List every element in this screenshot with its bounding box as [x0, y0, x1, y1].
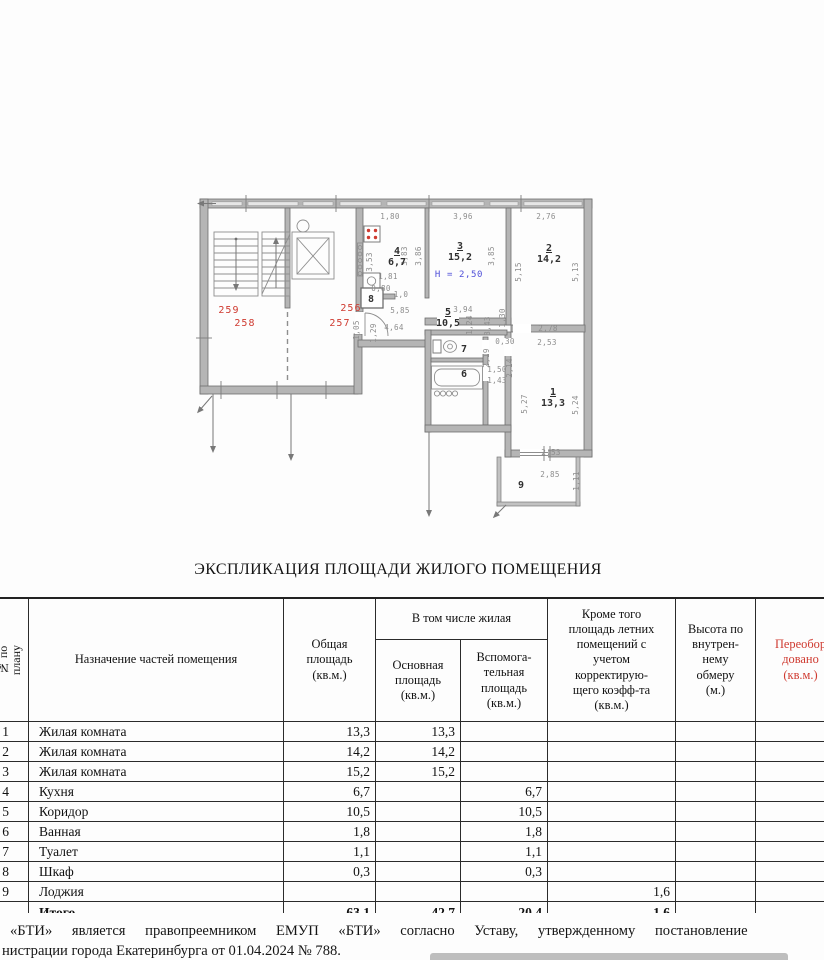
bathtub-icon: [432, 366, 483, 396]
cell-name: Ванная: [29, 822, 284, 842]
cell-aux: 6,7: [461, 782, 548, 802]
dimension-label: 1,30: [498, 308, 507, 328]
cell-no: 3: [0, 762, 29, 782]
cell-total: 14,2: [284, 742, 376, 762]
room-label: 9: [518, 480, 524, 491]
cell-main: 14,2: [376, 742, 461, 762]
dimension-label: 1,43: [487, 376, 507, 385]
dimension-label: 5,27: [520, 394, 529, 414]
room-label: 8: [368, 294, 374, 305]
cell-aux: 1,1: [461, 842, 548, 862]
cell-name: Лоджия: [29, 882, 284, 902]
cell-main: [376, 802, 461, 822]
dimension-label: 1,0: [394, 290, 409, 299]
cell-height: [676, 762, 756, 782]
table-row: 4Кухня6,76,7: [0, 782, 824, 802]
cell-aux: [461, 762, 548, 782]
cell-main: [376, 822, 461, 842]
dimension-label: 5,13: [571, 262, 580, 282]
header-main-area: Основная площадь (кв.м.): [376, 640, 461, 722]
header-reequipped: Переобор довано (кв.м.): [756, 598, 824, 722]
header-plan-no: № по плану: [0, 598, 29, 722]
dimension-label: 5,85: [390, 306, 410, 315]
cell-height: [676, 842, 756, 862]
elevator-icon: [292, 220, 334, 279]
room-label: 15,2: [448, 252, 472, 263]
cell-aux: [461, 742, 548, 762]
cell-re: [756, 722, 824, 742]
cell-re: [756, 762, 824, 782]
total-cell-summer: 1,6: [548, 902, 676, 914]
cell-height: [676, 862, 756, 882]
cell-total: [284, 882, 376, 902]
cell-re: [756, 782, 824, 802]
room-label: 13,3: [541, 398, 565, 409]
dimension-label: 2,76: [536, 212, 556, 221]
dimension-label: 1,29: [369, 323, 378, 343]
total-cell-height: [676, 902, 756, 914]
cell-re: [756, 862, 824, 882]
cell-no: 7: [0, 842, 29, 862]
cell-main: [376, 782, 461, 802]
cell-name: Туалет: [29, 842, 284, 862]
dimension-label: 5,24: [571, 395, 580, 415]
room-label: 6,7: [388, 257, 406, 268]
room-label: 3: [457, 241, 463, 252]
cell-summer: [548, 842, 676, 862]
cell-name: Жилая комната: [29, 722, 284, 742]
dimension-label: 3,53: [365, 252, 374, 272]
cell-aux: 1,8: [461, 822, 548, 842]
dimension-label: 1,11: [572, 471, 581, 491]
dimension-label: 3,43: [483, 316, 492, 336]
cell-no: 8: [0, 862, 29, 882]
dimension-label: 1,80: [380, 212, 400, 221]
cell-re: [756, 842, 824, 862]
dimension-label: 5,15: [514, 262, 523, 282]
cell-total: 6,7: [284, 782, 376, 802]
cell-summer: [548, 722, 676, 742]
cell-summer: [548, 782, 676, 802]
cell-aux: 0,3: [461, 862, 548, 882]
cell-height: [676, 802, 756, 822]
cell-total: 1,1: [284, 842, 376, 862]
dimension-label: 0,30: [495, 337, 515, 346]
page-edge-artifact: [430, 953, 788, 960]
unit-number-label: 258: [234, 318, 255, 329]
cell-re: [756, 882, 824, 902]
cell-height: [676, 782, 756, 802]
header-total-area: Общая площадь (кв.м.): [284, 598, 376, 722]
cell-total: 1,8: [284, 822, 376, 842]
cell-re: [756, 802, 824, 822]
total-cell-total: 63,1: [284, 902, 376, 914]
cell-no: 5: [0, 802, 29, 822]
room-label: 10,5: [436, 318, 460, 329]
cell-height: [676, 822, 756, 842]
table-row: 1Жилая комната13,313,3: [0, 722, 824, 742]
cell-no: 9: [0, 882, 29, 902]
cell-summer: 1,6: [548, 882, 676, 902]
cell-summer: [548, 802, 676, 822]
cell-aux: [461, 882, 548, 902]
dimension-label: 4,64: [384, 323, 404, 332]
floor-plan: 1,803,962,761,810,801,05,854,643,942,782…: [0, 0, 824, 545]
cell-re: [756, 742, 824, 762]
cell-main: [376, 842, 461, 862]
dimension-label: 1,05: [352, 320, 361, 340]
table-row: 7Туалет1,11,1: [0, 842, 824, 862]
table-row: 2Жилая комната14,214,2: [0, 742, 824, 762]
stove-icon: [364, 226, 380, 242]
cell-summer: [548, 862, 676, 882]
total-cell-re: [756, 902, 824, 914]
unit-number-label: 257: [329, 318, 350, 329]
total-cell-aux: 20,4: [461, 902, 548, 914]
cell-total: 13,3: [284, 722, 376, 742]
cell-height: [676, 882, 756, 902]
cell-main: 13,3: [376, 722, 461, 742]
total-cell-main: 42,7: [376, 902, 461, 914]
cell-name: Шкаф: [29, 862, 284, 882]
floor-plan-drawing: 1,803,962,761,810,801,05,854,643,942,782…: [0, 0, 824, 545]
cell-summer: [548, 742, 676, 762]
dimension-label: 3,85: [487, 246, 496, 266]
dimension-label: 2,53: [537, 338, 557, 347]
room-label: 6: [461, 369, 467, 380]
cell-no: 4: [0, 782, 29, 802]
table-row: 8Шкаф0,30,3: [0, 862, 824, 882]
table-row: 5Коридор10,510,5: [0, 802, 824, 822]
cell-name: Коридор: [29, 802, 284, 822]
dimension-label: 1,24: [465, 315, 474, 335]
unit-number-label: 259: [218, 305, 239, 316]
cell-main: 15,2: [376, 762, 461, 782]
room-label: 2: [546, 243, 552, 254]
header-height: Высота по внутрен- нему обмеру (м.): [676, 598, 756, 722]
cell-aux: 10,5: [461, 802, 548, 822]
cell-main: [376, 862, 461, 882]
room-label: 7: [461, 344, 467, 355]
explication-table-wrap: № по плану Назначение частей помещения О…: [0, 597, 824, 913]
header-summer-area: Кроме того площадь летних помещений с уч…: [548, 598, 676, 722]
dimension-label: 3,96: [453, 212, 473, 221]
cell-re: [756, 822, 824, 842]
cell-aux: [461, 722, 548, 742]
cell-summer: [548, 822, 676, 842]
header-aux-area: Вспомога- тельная площадь (кв.м.): [461, 640, 548, 722]
table-row: 9Лоджия1,6: [0, 882, 824, 902]
unit-number-label: 256: [340, 303, 361, 314]
dimension-label: 2,14: [505, 358, 514, 378]
stairs-icon: [214, 232, 290, 296]
cell-total: 10,5: [284, 802, 376, 822]
total-cell-no: [0, 902, 29, 914]
dimension-label: 3,94: [453, 305, 473, 314]
cell-no: 1: [0, 722, 29, 742]
toilet-icon: [433, 340, 457, 353]
room-label: 5: [445, 307, 451, 318]
cell-summer: [548, 762, 676, 782]
dimension-label: 2,85: [540, 470, 560, 479]
bti-document-page: 1,803,962,761,810,801,05,854,643,942,782…: [0, 0, 824, 960]
table-row: 3Жилая комната15,215,2: [0, 762, 824, 782]
header-purpose: Назначение частей помещения: [29, 598, 284, 722]
dimension-label: 0,80: [371, 284, 391, 293]
cell-height: [676, 742, 756, 762]
cell-name: Жилая комната: [29, 762, 284, 782]
total-row: Итого63,142,720,41,6: [0, 902, 824, 914]
dimension-label: 1,81: [378, 272, 398, 281]
cell-name: Кухня: [29, 782, 284, 802]
room-label: 14,2: [537, 254, 561, 265]
dimension-label: 3,86: [414, 246, 423, 266]
cell-no: 2: [0, 742, 29, 762]
header-living-group: В том числе жилая: [376, 598, 548, 640]
cell-name: Жилая комната: [29, 742, 284, 762]
dimension-label: 2,78: [538, 324, 558, 333]
page-title: ЭКСПЛИКАЦИЯ ПЛОЩАДИ ЖИЛОГО ПОМЕЩЕНИЯ: [0, 561, 824, 579]
total-cell-name: Итого: [29, 902, 284, 914]
table-row: 6Ванная1,81,8: [0, 822, 824, 842]
cell-height: [676, 722, 756, 742]
ceiling-height-label: Н = 2,50: [435, 270, 483, 280]
cell-no: 6: [0, 822, 29, 842]
room-label: 4: [394, 246, 400, 257]
footer-line-1: «БТИ» является правопреемником ЕМУП «БТИ…: [0, 922, 824, 942]
dimension-label: 2,19: [482, 348, 491, 368]
cell-main: [376, 882, 461, 902]
explication-table: № по плану Назначение частей помещения О…: [0, 597, 824, 913]
room-label: 1: [550, 387, 556, 398]
cell-total: 15,2: [284, 762, 376, 782]
cell-total: 0,3: [284, 862, 376, 882]
dimension-label: 2,53: [541, 448, 561, 457]
